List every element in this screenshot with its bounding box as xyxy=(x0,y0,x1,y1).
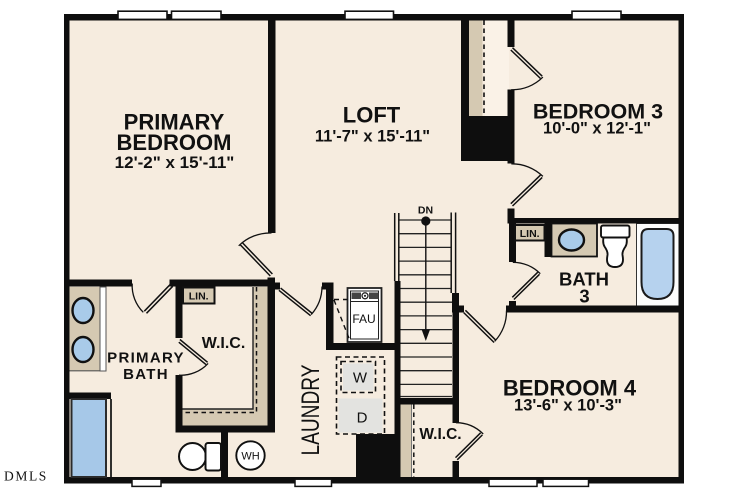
svg-text:LIN.: LIN. xyxy=(520,228,540,240)
svg-text:LOFT: LOFT xyxy=(343,103,401,128)
svg-text:LIN.: LIN. xyxy=(189,291,209,303)
svg-text:PRIMARY: PRIMARY xyxy=(107,349,185,366)
svg-text:W: W xyxy=(353,370,368,387)
svg-text:BATH: BATH xyxy=(123,366,169,383)
svg-text:BEDROOM: BEDROOM xyxy=(117,130,232,155)
svg-text:W.I.C.: W.I.C. xyxy=(419,426,461,443)
svg-text:WH: WH xyxy=(241,451,259,463)
svg-text:10'-0" x 12'-1": 10'-0" x 12'-1" xyxy=(543,120,651,138)
svg-text:11'-7" x 15'-11": 11'-7" x 15'-11" xyxy=(315,128,430,146)
svg-text:DMLS: DMLS xyxy=(4,469,48,484)
svg-text:13'-6" x 10'-3": 13'-6" x 10'-3" xyxy=(514,397,622,415)
svg-text:W.I.C.: W.I.C. xyxy=(202,335,246,352)
svg-text:LAUNDRY: LAUNDRY xyxy=(297,364,325,455)
svg-text:12'-2" x 15'-11": 12'-2" x 15'-11" xyxy=(115,153,235,172)
svg-text:DN: DN xyxy=(418,205,433,217)
svg-text:3: 3 xyxy=(579,285,589,306)
svg-text:D: D xyxy=(357,410,368,427)
svg-text:FAU: FAU xyxy=(352,312,375,326)
